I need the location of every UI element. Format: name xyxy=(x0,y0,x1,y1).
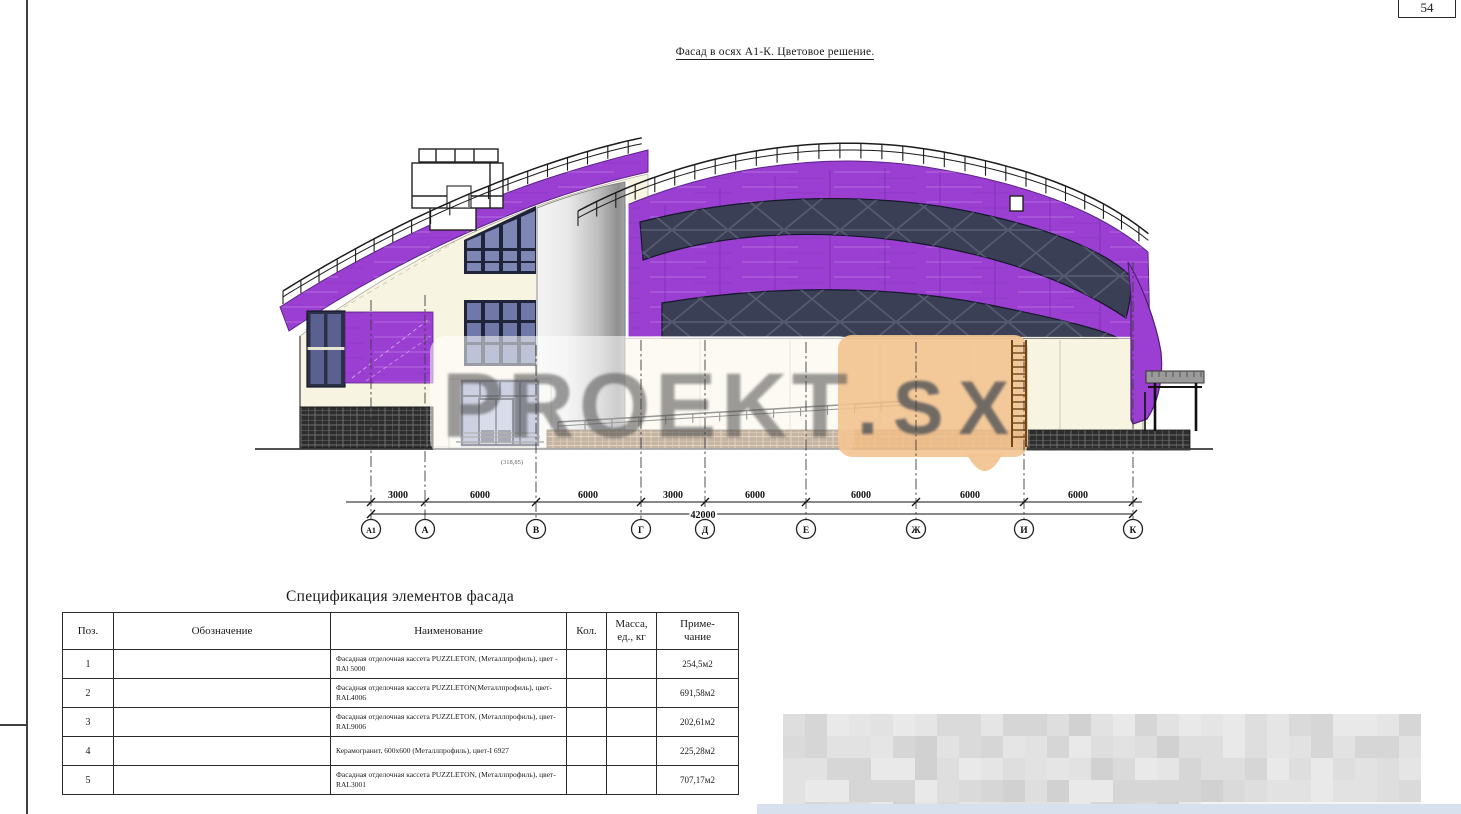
row-pos: 1 xyxy=(63,650,114,679)
axis-bubbles: А1 А В Г Д Е Ж И К xyxy=(362,520,1143,539)
spec-row: 1 Фасадная отделочная кассета PUZZLETON,… xyxy=(63,650,739,679)
col-header-qty: Кол. xyxy=(567,613,607,650)
svg-text:6000: 6000 xyxy=(470,490,490,501)
svg-text:И: И xyxy=(1020,526,1028,536)
svg-text:Д: Д xyxy=(702,526,709,536)
svg-text:Е: Е xyxy=(803,526,809,536)
col-header-note: Приме- чание xyxy=(657,613,739,650)
row-qty xyxy=(567,650,607,679)
spec-row: 2 Фасадная отделочная кассета PUZZLETON(… xyxy=(63,679,739,708)
drawing-sheet: 54 Фасад в осях А1-К. Цветовое решение. xyxy=(0,0,1461,814)
svg-text:6000: 6000 xyxy=(745,490,765,501)
row-note: 254,5м2 xyxy=(657,650,739,679)
spec-row: 4 Керамогранит, 600х600 (Металлпрофиль),… xyxy=(63,737,739,766)
col-header-name: Наименование xyxy=(331,613,567,650)
spec-header-row: Поз. Обозначение Наименование Кол. Масса… xyxy=(63,613,739,650)
left-window-block xyxy=(307,311,345,387)
col-header-mass: Масса, ед., кг xyxy=(607,613,657,650)
watermark-text: PROEKT xyxy=(442,355,850,457)
row-mass xyxy=(607,650,657,679)
row-name: Фасадная отделочная кассета PUZZLETON, (… xyxy=(331,650,567,679)
basement-tiles-right xyxy=(1027,430,1190,450)
spec-table: Поз. Обозначение Наименование Кол. Масса… xyxy=(62,612,739,795)
watermark: PROEKT .SX xyxy=(430,335,1028,471)
basement-tiles-left xyxy=(300,407,433,448)
elevation-mark: (318,85) xyxy=(501,459,523,466)
col-header-pos: Поз. xyxy=(63,613,114,650)
right-canopy xyxy=(1145,371,1204,431)
svg-text:6000: 6000 xyxy=(578,490,598,501)
svg-text:К: К xyxy=(1130,526,1137,536)
dimension-values: 3000 6000 6000 3000 6000 6000 6000 6000 … xyxy=(388,490,1088,521)
dimension-lines xyxy=(346,498,1142,518)
pixelated-title-block xyxy=(783,714,1421,810)
svg-text:6000: 6000 xyxy=(1068,490,1088,501)
spec-table-title: Спецификация элементов фасада xyxy=(62,588,738,606)
svg-text:Ж: Ж xyxy=(911,526,921,536)
spec-row: 5 Фасадная отделочная кассета PUZZLETON,… xyxy=(63,766,739,795)
specification-section: Спецификация элементов фасада Поз. Обозн… xyxy=(62,588,738,795)
svg-text:В: В xyxy=(533,526,540,536)
bottom-blue-strip xyxy=(757,804,1461,814)
col-header-designation: Обозначение xyxy=(114,613,331,650)
svg-text:6000: 6000 xyxy=(851,490,871,501)
svg-text:3000: 3000 xyxy=(388,490,408,501)
left-purple-panel xyxy=(345,312,433,383)
spec-row: 3 Фасадная отделочная кассета PUZZLETON,… xyxy=(63,708,739,737)
svg-text:3000: 3000 xyxy=(663,490,683,501)
svg-text:А: А xyxy=(422,526,429,536)
svg-text:Г: Г xyxy=(638,526,644,536)
railing-post-box xyxy=(1010,196,1023,211)
row-designation xyxy=(114,650,331,679)
svg-text:А1: А1 xyxy=(366,526,376,535)
svg-text:6000: 6000 xyxy=(960,490,980,501)
